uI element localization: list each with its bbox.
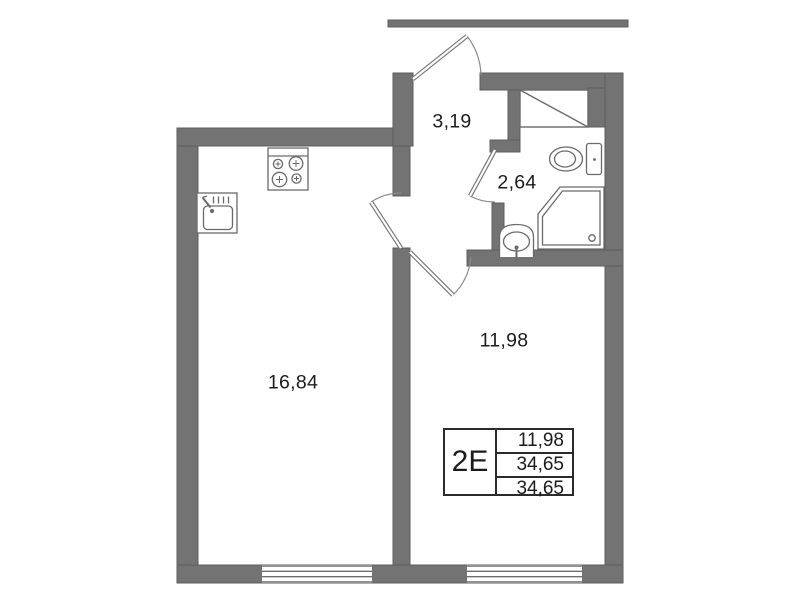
room-area-label-hallway: 3,19 xyxy=(432,111,471,134)
floor-plan-drawing xyxy=(0,0,799,600)
floor-plan: 3,19 2,64 11,98 16,84 2E 11,98 34,65 34,… xyxy=(0,0,799,600)
stamp-total-area-value: 34,65 xyxy=(497,454,572,478)
stamp-living-area-value: 11,98 xyxy=(497,430,572,454)
top-wall xyxy=(480,73,623,90)
stove-icon xyxy=(268,148,308,190)
right-wall xyxy=(605,73,623,583)
room-area-label-kitchen-living: 16,84 xyxy=(268,372,318,395)
room-door-icon xyxy=(410,252,471,295)
divider-wall-lower xyxy=(393,248,410,565)
bathroom-door-icon xyxy=(470,150,495,202)
divider-wall-upper xyxy=(393,146,410,196)
unit-type-label: 2E xyxy=(445,430,497,494)
ventilation-shaft-icon xyxy=(520,90,588,127)
bathroom-left-wall-upper xyxy=(508,90,520,142)
bathroom-bottom-wall xyxy=(467,250,623,266)
shower-icon xyxy=(538,187,604,249)
washbasin-icon xyxy=(500,225,534,262)
room-area-label-bathroom: 2,64 xyxy=(497,172,536,195)
window-left-icon xyxy=(262,565,372,583)
toilet-icon xyxy=(550,144,602,175)
stamp-overall-area-value: 34,65 xyxy=(497,478,572,500)
left-wall xyxy=(177,128,198,583)
window-right-icon xyxy=(467,565,582,583)
room-area-label-living-room: 11,98 xyxy=(480,330,529,353)
area-stamp-table: 2E 11,98 34,65 34,65 xyxy=(443,428,574,496)
stamp-values-column: 11,98 34,65 34,65 xyxy=(497,430,572,494)
hallway-left-wall xyxy=(393,73,413,146)
entrance-door-icon xyxy=(413,36,481,79)
kitchen-top-wall xyxy=(177,128,413,146)
corridor-wall-stub xyxy=(388,20,628,27)
kitchen-sink-icon xyxy=(197,193,237,233)
kitchen-door-icon xyxy=(371,193,401,248)
vent-shaft-right-wall xyxy=(588,88,605,127)
